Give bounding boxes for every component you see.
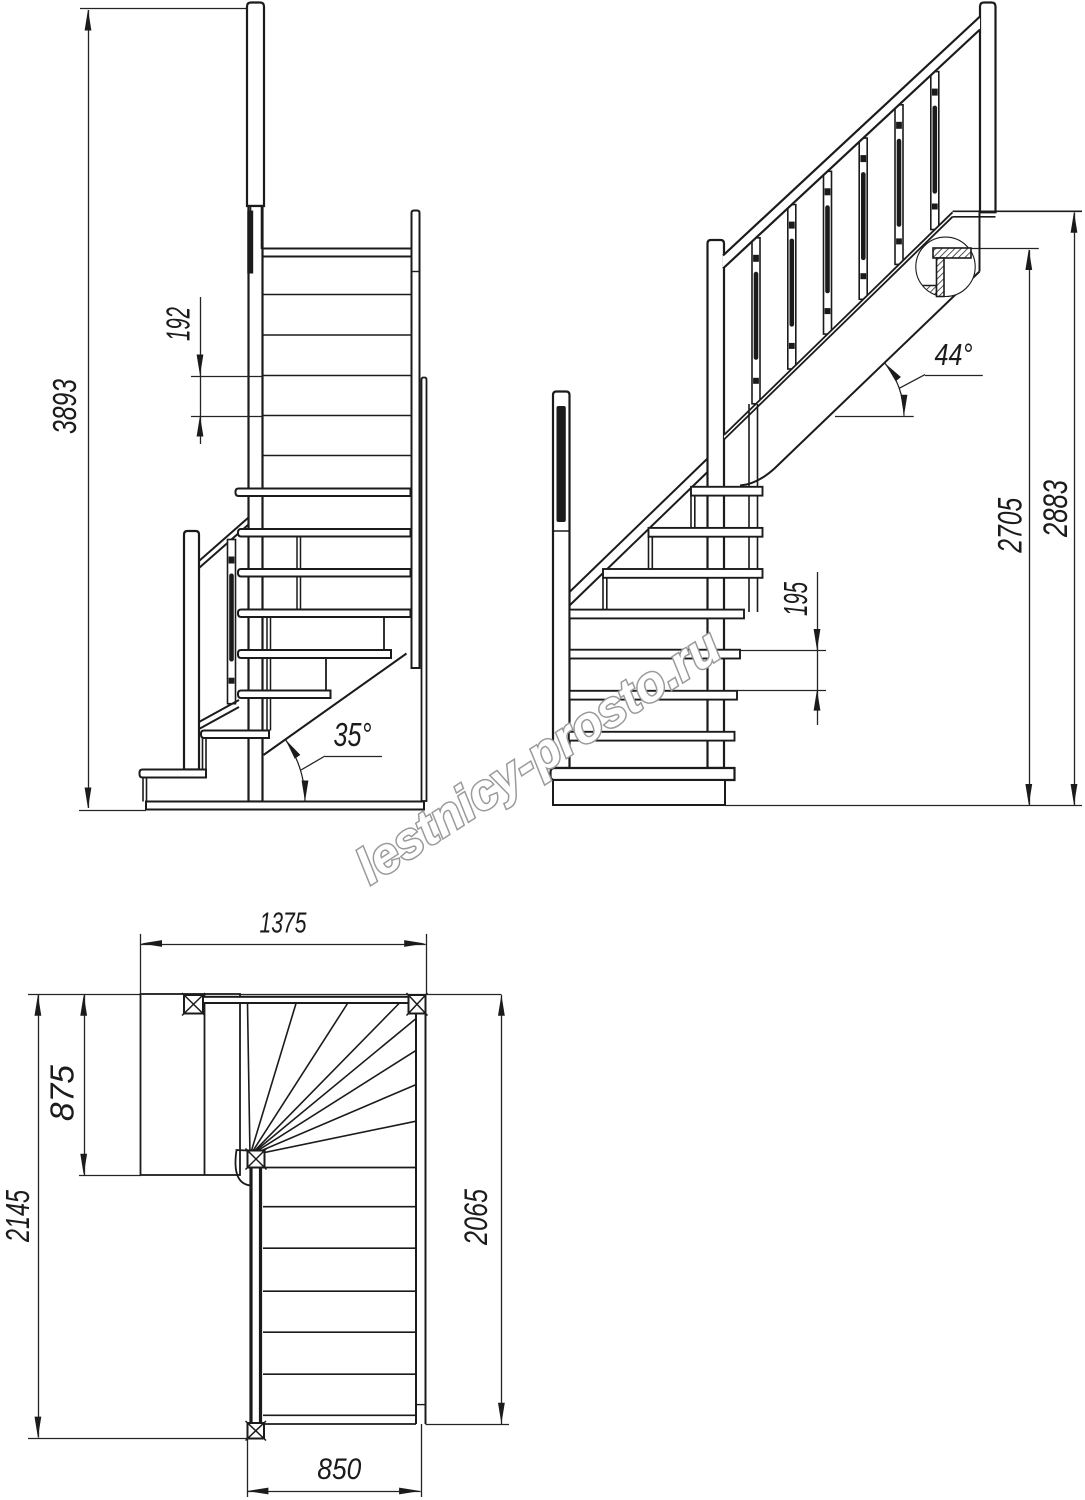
svg-text:2065: 2065	[458, 1189, 494, 1246]
svg-text:192: 192	[160, 307, 197, 341]
svg-text:850: 850	[317, 1453, 361, 1486]
svg-text:35°: 35°	[334, 716, 372, 753]
svg-text:44°: 44°	[935, 337, 973, 372]
svg-text:3893: 3893	[46, 379, 83, 434]
svg-text:1375: 1375	[260, 908, 308, 940]
svg-text:875: 875	[43, 1064, 80, 1121]
svg-text:2883: 2883	[1037, 480, 1075, 538]
svg-text:2705: 2705	[992, 498, 1030, 554]
svg-text:195: 195	[777, 582, 814, 616]
svg-text:2145: 2145	[0, 1190, 36, 1243]
